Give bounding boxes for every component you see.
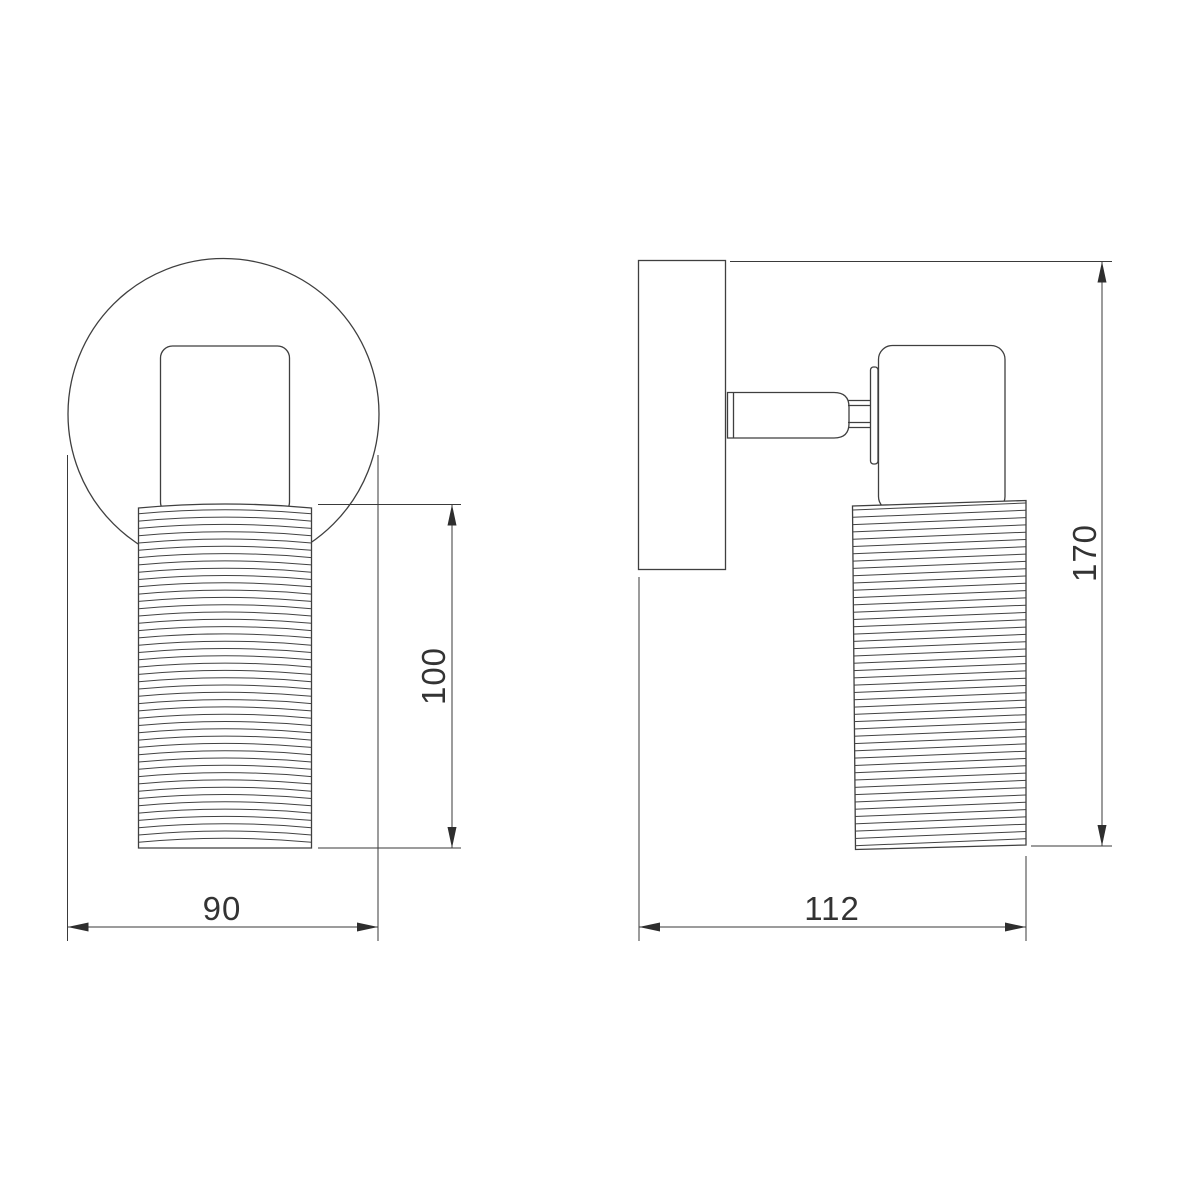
dimension-label-height: 170 [1066, 524, 1103, 582]
front-view [68, 259, 379, 849]
arm-neck [848, 401, 872, 428]
wall-plate-side [639, 261, 726, 570]
arrowhead-right [357, 923, 378, 932]
arrowhead-left [639, 923, 660, 932]
arrowhead-up [448, 505, 457, 526]
arrowhead-down [448, 827, 457, 848]
technical-drawing-canvas: 90 100 112 170 [0, 0, 1200, 1200]
dimension-label-width: 90 [203, 890, 242, 927]
side-view [639, 261, 1027, 854]
shade-front [139, 503, 312, 849]
bracket-plate-side [871, 367, 879, 464]
dimension-label-depth: 112 [804, 890, 860, 927]
dimension-front-shade-height: 100 [318, 505, 461, 849]
shade-side [853, 501, 1027, 854]
lamp-head-front [161, 346, 290, 514]
arrowhead-up [1098, 262, 1107, 283]
arrowhead-left [68, 923, 89, 932]
dimension-label-shade-height: 100 [415, 647, 452, 705]
arrowhead-right [1005, 923, 1026, 932]
arm-side [728, 393, 850, 439]
arrowhead-down [1098, 825, 1107, 846]
lamp-head-side [879, 346, 1006, 511]
